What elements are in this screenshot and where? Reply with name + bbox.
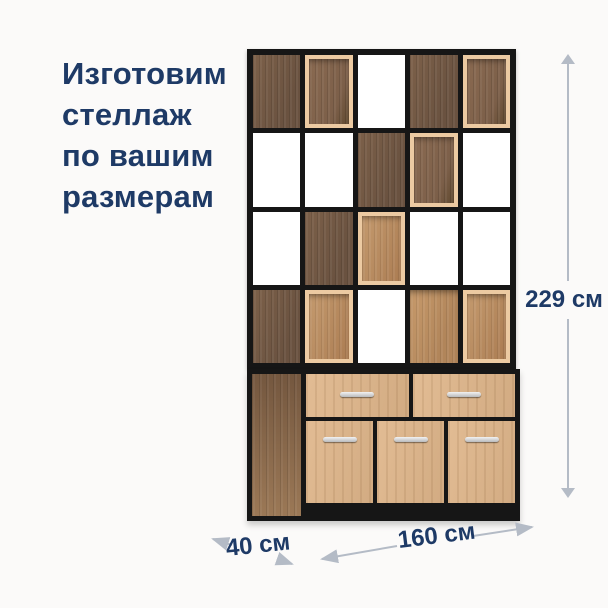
shelf-cell-dark — [253, 55, 300, 128]
shelf-cell-dark — [253, 290, 300, 363]
shelf-cell-open — [253, 133, 300, 206]
arrow-down-icon — [561, 488, 575, 498]
headline: Изготовим стеллаж по вашим размерам — [62, 53, 227, 217]
headline-line-1: Изготовим — [62, 53, 227, 94]
shelf-cell-open — [358, 290, 405, 363]
drawer-front — [306, 374, 409, 417]
shelf-cell-box-dark — [305, 55, 352, 128]
cabinet-front — [301, 369, 520, 521]
box-interior — [414, 137, 453, 202]
width-arrow-left-segment — [322, 546, 397, 559]
door-front — [306, 421, 373, 503]
shelf-cell-open — [463, 212, 510, 285]
shelf-cell-open — [358, 55, 405, 128]
product-card: Изготовим стеллаж по вашим размерам 229 … — [0, 0, 608, 608]
cabinet-side-panel — [247, 369, 301, 521]
drawer-handle — [340, 392, 374, 397]
door-row — [306, 421, 515, 503]
shelf-cell-box-light — [358, 212, 405, 285]
shelf-cell-box-dark — [463, 55, 510, 128]
shelf-cell-open — [305, 133, 352, 206]
box-interior — [467, 294, 506, 359]
shelf-cell-dark — [358, 133, 405, 206]
door-front — [377, 421, 444, 503]
door-handle — [465, 437, 499, 442]
shelf-cell-dark — [410, 55, 457, 128]
shelf-cell-open — [463, 133, 510, 206]
height-dimension: 229 см — [557, 54, 579, 498]
shelving-unit — [247, 49, 520, 521]
height-dimension-line — [567, 61, 569, 491]
shelf-cell-open — [410, 212, 457, 285]
depth-arrow-right-segment — [278, 559, 292, 564]
box-interior — [309, 59, 348, 124]
drawer-row — [306, 374, 515, 417]
shelf-cell-oak — [410, 290, 457, 363]
shelf-cell-box-light — [305, 290, 352, 363]
drawer-front — [413, 374, 516, 417]
headline-line-3: по вашим — [62, 135, 227, 176]
shelf-cell-box-light — [463, 290, 510, 363]
drawer-handle — [447, 392, 481, 397]
headline-line-4: размерам — [62, 176, 227, 217]
height-label: 229 см — [524, 281, 604, 319]
shelf-cell-dark — [305, 212, 352, 285]
shelf-cell-box-dark — [410, 133, 457, 206]
box-interior — [467, 59, 506, 124]
shelf-grid — [247, 49, 516, 369]
door-handle — [394, 437, 428, 442]
door-front — [448, 421, 515, 503]
width-arrow-right-segment — [473, 527, 532, 536]
headline-line-2: стеллаж — [62, 94, 227, 135]
cabinet-base — [247, 369, 520, 521]
box-interior — [309, 294, 348, 359]
box-interior — [362, 216, 401, 281]
shelf-cell-open — [253, 212, 300, 285]
door-handle — [323, 437, 357, 442]
